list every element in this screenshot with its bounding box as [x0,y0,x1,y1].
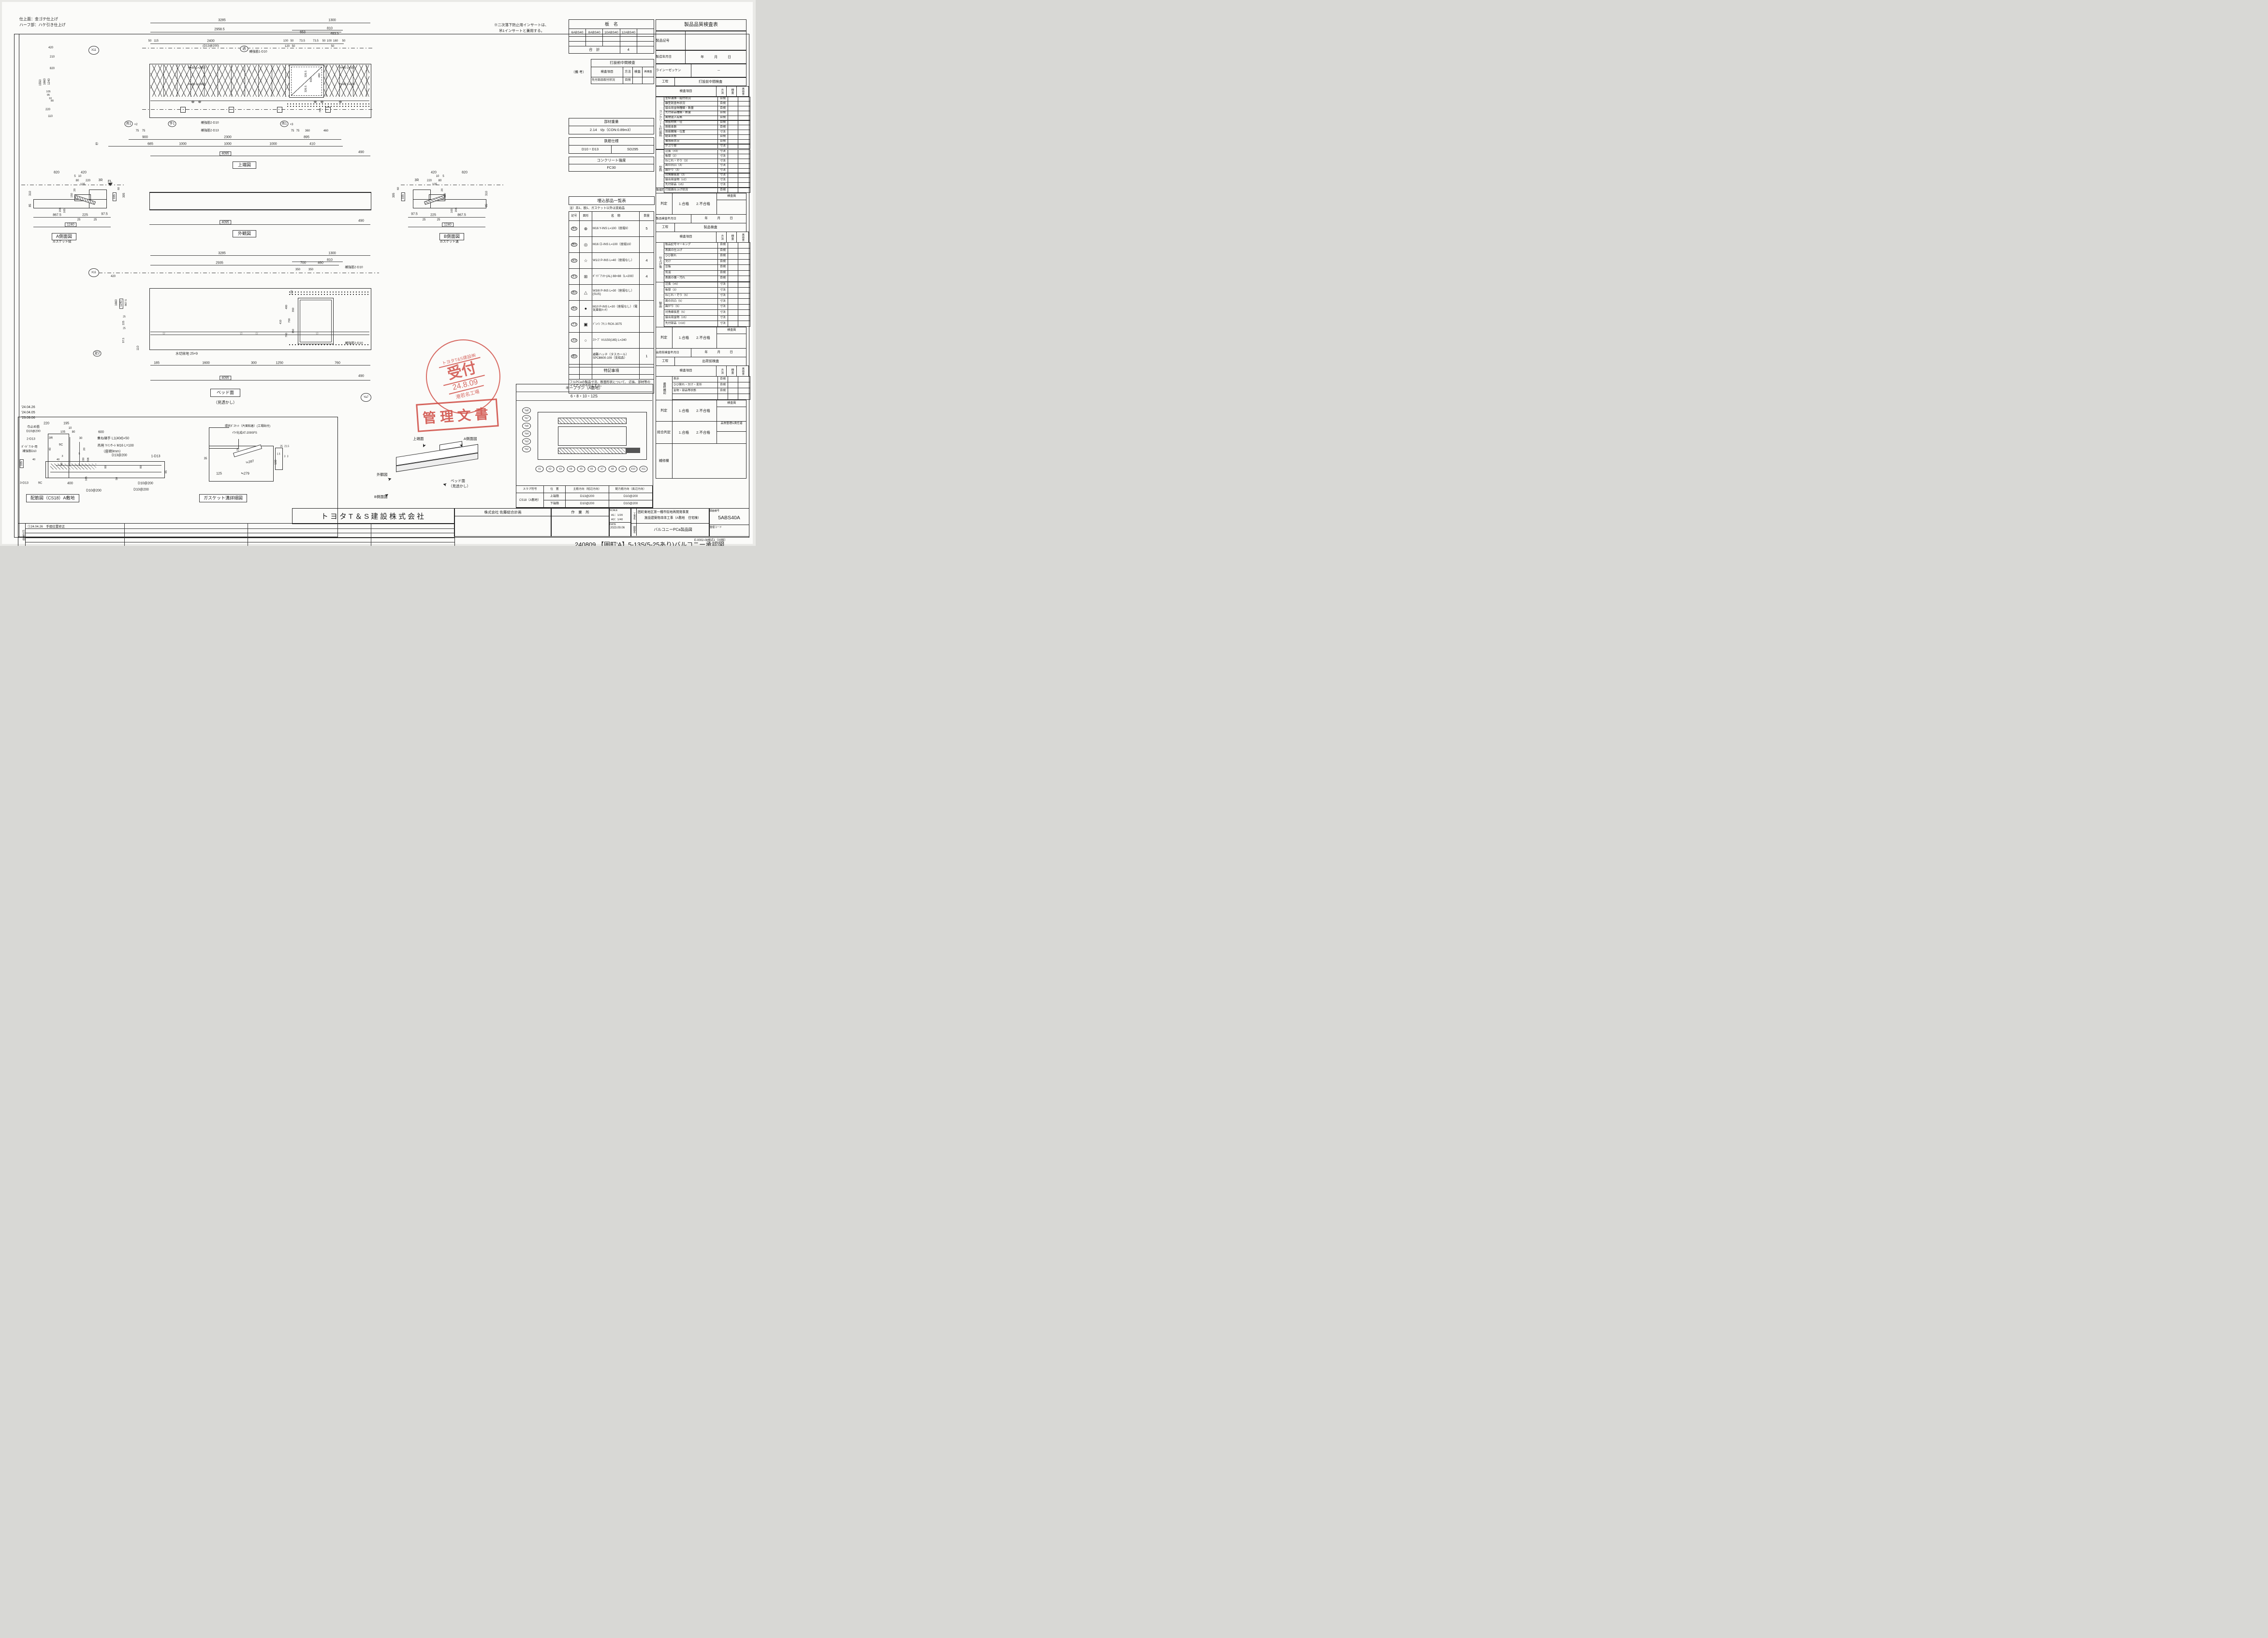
q-cell: 打設面仕上げ状況 [664,188,718,193]
quality-table: 製品品質検査表製品記号製造年月日年 月 日ラインーゼッケン－工程打設前中間検査検… [656,19,746,479]
tb-project: 工事名囲町東地区第一種市街地再開発事業施設建築物本体工事（A敷地 住宅棟）図面名… [630,508,710,537]
dim-50: 50 [291,40,294,43]
dim-40: 40 [32,459,35,462]
dim-×2: ×2 [134,123,138,126]
keyplan-x-X1: X1 [536,466,544,472]
weight-table-cell: 2.14 t/p（CON:0.89m3） [569,126,654,134]
dim-350: 350 [293,329,295,333]
q-cell: 寸法 [717,144,728,149]
rebar-spec-table-cell: 鉄筋仕様 [569,138,654,146]
q-row: 接合用金物（±5）寸法 [664,315,750,321]
q-row: 板厚（3）寸法 [664,288,750,293]
dim-60: 60 [118,187,121,190]
concrete-table: コンクリート強度FC30 [569,157,654,172]
plan-hatch [150,65,369,97]
slab-rebar-table-cell: 上端筋 [544,493,566,500]
q-cell: 製造年月日 [656,50,686,64]
q-row: 検査項目方法検査再検査 [656,86,746,97]
embedded-parts-table-cell: 数量 [640,212,654,221]
q-cell: 判定 [656,400,673,422]
q-cell [728,394,738,400]
dim-150: 150 [71,193,74,197]
dim-2400: 2400 [207,39,215,43]
embedded-parts-table-cell: 足2 [569,253,580,269]
dim-400: 400 [67,482,73,485]
q-cell [728,315,738,321]
q-cell [738,315,750,321]
q-cell: ねじれ・そり（5） [664,293,718,299]
dim-310: 310 [29,191,32,196]
dim-10: 10 [436,175,439,178]
dim-60: 60 [397,187,400,190]
rebar-spec-table-cell: D10・D13 [569,146,612,154]
q-cell: 製品記号 [656,31,686,51]
q-cell [738,293,750,299]
dim-100: 100 [327,40,332,43]
q-cell: 曲がり（5） [664,304,718,310]
slab-rebar-table-cell: 配力筋方向（長辺方向） [609,486,653,493]
keyplan-x-X7: X7 [598,466,606,472]
rebar-title: 配筋図（CS18）A敷地 [26,494,79,502]
dim-395: 395 [393,193,395,198]
dim-220: 220 [44,422,49,425]
biko-table-cell: 再検査 [643,67,654,77]
dim-50: 50 [342,40,346,43]
dim-3: 3 [61,455,63,458]
dim-30: 30 [79,437,83,440]
biko-table-cell: 検査 [633,67,643,77]
q-row: ねじれ・そり（5）寸法 [664,293,750,299]
q-cell: 判定 [656,193,673,215]
q-cell: 型枠 [656,149,664,188]
q-cell: 再検査 [736,366,749,377]
grid-bubble-x11-bed: X11 [88,268,99,277]
q-cell [728,376,738,382]
dim-80: 80 [140,466,143,468]
insert-note-1: ※二次落下防止用インサートは、 [494,22,549,28]
q-cell [738,270,750,276]
q-row: 面の凹凸（3）寸法 [664,163,750,168]
dim-D10@200: D10@200 [26,430,40,434]
slab-rebar-table-cell: CS18（A敷地） [516,493,544,508]
dim-補強筋1-D10: 補強筋1-D10 [249,51,267,54]
q-cell: 目視 [717,376,728,382]
elevA-sub: ガスケット貼 [53,241,72,244]
q-cell: 辺長（±5） [664,282,718,288]
q-cell: 目視 [717,276,728,281]
dim-21.5: 21.5 [284,445,289,448]
dim-335: 335 [113,192,117,201]
q-section: 打設後打設面仕上げ状況目視 [656,188,746,193]
bed-title: ベッド面 [210,389,240,397]
q-cell [738,253,750,259]
q-cell: 目視 [717,188,728,193]
dim-225: 225 [123,321,126,325]
dim-1250: 1250 [276,361,283,365]
drawing-sheet: 仕上面：金ゴテ仕上げ ハーフ部：ハケ引き仕上げ ※二次落下防止用インサートは、 … [0,0,756,546]
keyplan-ya-Ya6: Ya6 [522,423,531,429]
q-cell [738,287,750,293]
dim-300: 300 [251,361,257,365]
embedded-parts-table-cell: 脱1 [569,237,580,253]
q-row: 判定1.合格 2.不合格検査員 [656,193,746,215]
q-cell: 目視 [717,270,728,276]
dim-100: 100 [275,460,278,465]
dim-25: 25 [280,445,283,448]
dim-50: 50 [148,40,152,43]
embedded-parts-table-cell: 5 [640,221,654,237]
dim-逃: 逃 [240,46,249,52]
slab-rebar-table-cell: D10@200 [609,500,653,508]
embedded-parts-table-cell: 避難ハッチ（タスカール） SPCⅢ600-109（支給品） [592,349,640,365]
dim-185: 185 [154,361,160,365]
dim-H=80 L=2800: H=80 L=2800 [188,83,205,86]
revision-row: ①24.04.26 手摺位置修正 [26,524,454,529]
dim-105: 105 [80,183,85,186]
embedded-parts-table-cell [640,333,654,349]
q-row: ひび割れ目視 [664,254,750,260]
plan-opening [289,65,324,98]
q-cell [738,264,750,270]
dim-350: 350 [293,307,295,312]
revision-divider [248,523,248,546]
biko-table-cell: 検査項目 [591,67,623,77]
dim-460: 460 [323,130,328,132]
q-cell: 豆板 [664,264,718,270]
q-cell [738,298,750,304]
elevB-sub: ガスケット溝 [440,241,459,244]
embedded-parts-table-cell: 水2 [569,301,580,317]
panel-name-table-cell [637,46,654,54]
q-section-rows: 辺長（±5）寸法板厚（3）寸法ねじれ・そり（5）寸法面の凹凸（5）寸法曲がり（5… [664,282,750,327]
dim-☆: ☆ [315,332,319,336]
q-inspector: 検査員 [717,193,746,215]
dim-H=80 L=300: H=80 L=300 [339,67,355,70]
dim-40: 40 [57,459,59,462]
q-cell [728,270,738,276]
dim-653: 653 [300,30,306,34]
panel-name-table-cell: 10ABS40 [603,29,620,37]
dim-20: 20 [74,189,77,191]
q-cell [728,298,738,304]
q-cell: 製品検査年月日 [656,214,691,223]
revision-row [26,529,454,533]
dim-H=80 L=2800: H=80 L=2800 [188,67,205,70]
q-cell [728,264,738,270]
revision-label: 訂正事項 [18,524,26,546]
embedded-parts-table-cell: ▣ [580,317,592,333]
dim-310: 310 [485,191,488,196]
dim-80: 80 [105,466,108,468]
q-row: ラインーゼッケン－ [656,64,746,77]
dim-1660: 1660 [44,78,46,85]
dim-220: 220 [45,108,50,111]
q-inspector-blank [717,334,746,348]
dim-208: 208 [455,207,458,212]
q-cell [738,144,750,149]
panel-name-table-cell [620,42,637,46]
elevA-title: A側面図 [52,233,76,240]
q-cell: 1.合格 2.不合格 [672,193,717,215]
dim-巾止め筋: 巾止め筋 [27,426,40,429]
dim-820: 820 [54,171,59,174]
dim-95: 95 [47,94,50,97]
dim-25: 25 [423,219,426,221]
q-row: ねじれ・そり（3）寸法 [664,159,750,164]
iso-label-top: 上端面 [413,436,424,441]
embedded-parts-table-cell: M16 ロ-INS L=100（座堀19） [592,237,640,253]
dim-395: 395 [123,193,126,198]
dim-165: 165 [86,476,88,481]
grid-bubble-x11-plan: X11 [88,46,99,55]
tb-scale-date: SCALEA1：1/20A3：1/40DATE2023.09.06 [609,508,631,537]
q-row: 製造年月日年 月 日 [656,50,746,64]
q-cell [717,394,728,400]
dim-吊1: 吊1 [125,121,133,127]
rebar-spec-table-cell: SD295 [612,146,654,154]
q-cell: 寸法 [717,293,728,299]
q-inspector-blank [717,200,746,214]
dim-40: 40 [61,463,64,466]
q-cell [738,276,750,281]
dim-150: 150 [83,457,86,462]
q-cell: 工程 [656,357,675,366]
q-cell: 製品 [656,282,664,327]
dim-73.5: 73.5 [313,40,319,43]
panel-name-table-cell [603,42,620,46]
embedded-parts-table-cell: ﾎﾞｲﾄﾞｱﾝｶｰ(AL) 88×88（L=200） [592,269,640,285]
panel-name-table-cell [603,37,620,42]
q-cell [728,293,738,299]
q-cell: 目視 [717,264,728,270]
dim-25: 25 [94,219,97,221]
dim-3R: 3R [99,178,103,182]
dim-1240: 1240 [119,298,123,308]
keyplan-x-X4: X4 [567,466,575,472]
dim-5: 5 [74,175,75,178]
q-cell: 接合用金物（±5） [664,315,718,321]
embedded-parts-table-cell [640,237,654,253]
q-cell: 寸法 [717,309,728,315]
dim-220: 220 [86,179,90,182]
embedded-parts-table-cell: 4 [640,269,654,285]
dim-80: 80 [72,431,75,434]
embedded-parts-table-cell: M16 Y-INS L=100（座堀9） [592,221,640,237]
dim-97.5: 97.5 [123,338,126,343]
q-cell: 打設後 [656,188,664,193]
biko-table: 打設前中間検査検査項目方法検査再検査先付部品取付状況目視 [591,59,654,84]
q-row: 総合判定1.合格 2.不合格品質管理G責任者 [656,422,746,444]
q-cell: 目視 [717,248,728,254]
q-section: 最終確認表示目視ひび割れ・欠け・変形目視金物・部品等状態目視 [656,377,746,400]
dim-867.5: 867.5 [125,299,128,306]
dim-208: 208 [88,457,90,462]
q-inspector-label: 検査員 [717,327,746,334]
keyplan-ya-Ya4: Ya4 [522,431,531,437]
q-cell [728,304,738,310]
dim-480: 480 [319,73,322,77]
q-cell: 目視 [717,388,728,394]
panel-name-table-cell [569,37,586,42]
dim-10: 10 [69,427,72,430]
q-cell: 補修欄 [656,443,673,479]
tb-dwg-number: 図面番号5ABS40A整理コード [709,508,749,537]
dim-⊕: ⊕ [191,100,195,104]
q-cell: － [691,64,747,78]
embedded-parts-table-cell [640,301,654,317]
dim-10: 10 [78,175,82,178]
keyplan-x-X9: X9 [619,466,627,472]
dim-110: 110 [48,115,53,118]
dim-420: 420 [111,275,116,278]
keyplan-highlight [626,448,640,453]
dim-⊕: ⊕ [321,100,324,104]
dim-20: 20 [84,448,87,451]
keyplan-subtitle: 6・8・10・12S [516,394,652,399]
bed-opening [298,298,334,344]
q-cell [738,259,750,265]
embedded-parts-table-cell: W3/8 P-INS L=30（座堀なし）(SUS) [592,285,640,301]
dim-653: 653 [310,77,313,82]
elevB-parapet [413,190,431,208]
dim-350: 350 [308,268,313,271]
q-row: 補強筋状況目視 [664,139,750,144]
dim-50: 50 [322,40,326,43]
dim-25: 25 [123,327,126,330]
tb-architect: 株式会社 佐藤総合計画 [454,508,552,537]
q-cell: 年 月 日 [691,214,747,223]
dim-①: ① [95,142,98,146]
q-cell [738,382,750,388]
keyplan-ya-Ya7: Ya7 [522,415,531,422]
biko-table-cell: 先付部品取付状況 [591,77,623,84]
q-inspector-label: 検査員 [717,193,746,200]
dim-335: 335 [20,459,24,468]
dim-335: 335 [401,192,405,201]
dim-D10@200: D10@200 [86,489,102,492]
panel-name-table-cell [637,37,654,42]
dim-490: 490 [358,150,364,154]
embedded-parts-table-cell: ○ [580,333,592,349]
front-outline [149,192,371,210]
dim-685: 685 [147,142,153,146]
q-cell: 表面の仕上げ [664,248,718,254]
revision-row [26,542,454,546]
dim-490: 490 [358,219,364,222]
dim-165: 165 [64,208,67,213]
embedded-parts-table-cell: ｽﾘｰﾌﾞ VU150(165) L=240 [592,333,640,349]
q-cell [738,304,750,310]
q-cell [728,287,738,293]
dim-25: 25 [123,316,126,318]
dim-160: 160 [333,40,338,43]
q-cell [728,182,738,188]
q-row: 先付部品（±5）寸法 [664,183,750,188]
dim-50: 50 [292,45,295,48]
embedded-parts-table-cell: 名 称 [592,212,640,221]
dim-1240: 1240 [65,222,76,227]
dim-(D13@200): (D13@200) [203,45,219,48]
weight-table-cell: 部材重量 [569,118,654,126]
q-row: 工程出荷前検査 [656,357,746,366]
q-cell [738,388,750,394]
q-row: ひび割れ・欠け・変形目視 [672,382,750,388]
dim-420: 420 [81,171,87,174]
revision-rows: ①24.04.26 手摺位置修正 [26,524,454,546]
dim-2958.5: 2958.5 [214,28,224,31]
dim-225: 225 [430,213,436,217]
q-cell: 検査項目 [656,86,717,97]
dim-D13@200: D13@200 [112,453,127,457]
panel-name-table-cell [637,29,654,37]
q-cell: 1.合格 2.不合格 [672,400,717,422]
q-section-rows: 表示目視ひび割れ・欠け・変形目視金物・部品等状態目視 [672,377,750,400]
dim-210: 210 [50,56,55,58]
q-row: 鉄筋材質・径目視 [664,120,750,125]
q-cell: 表示 [672,376,718,382]
q-row: 先付部品種類・数量目視 [664,111,750,116]
q-cell [738,282,750,288]
dim-ﾎﾞｲﾄﾞｱﾝｶｰ用: ﾎﾞｲﾄﾞｱﾝｶｰ用 [21,446,37,449]
dim-25: 25 [437,219,440,221]
dim-220: 220 [427,179,432,182]
q-cell [685,31,747,51]
dim-ｲﾜｲ化成AT-209SFS: ｲﾜｲ化成AT-209SFS [232,432,257,435]
dim-1.5: 1.5 [277,453,280,455]
dim-1-D13: 1-D13 [151,454,160,458]
elevA-parapet [89,190,107,208]
embedded-parts-table-cell: ◎ [580,237,592,253]
q-cell: 寸法 [717,182,728,188]
keyplan-x-X3: X3 [556,466,565,472]
q-cell: 方法 [716,232,727,243]
embedded-parts-table-cell: M10 P-INS L=30（座堀なし）（電気亜鉛ﾒｯｷ） [592,301,640,317]
dim-867.5: 867.5 [457,213,466,217]
dim-4095: 4095 [219,376,231,380]
rebar-spec-table: 鉄筋仕様D10・D13SD295 [569,137,654,154]
keyplan-ya-Ya3: Ya3 [522,439,531,445]
q-row: 離型剤塗布状況目視 [664,102,750,106]
tb-site: 作 業 所 [551,508,610,537]
dim-105: 105 [60,431,65,434]
dim-410: 410 [309,142,315,146]
q-row: 工程製品検査 [656,223,746,232]
dim-補強筋D10: 補強筋D10 [22,450,36,453]
q-row: 型枠清掃・組付状況目視 [664,97,750,102]
embedded-parts-table-cell [580,349,592,365]
dim-1000: 1000 [179,142,187,146]
dim-85: 85 [165,470,168,473]
q-cell: 出荷前検査年月日 [656,348,691,357]
dim-208: 208 [59,207,62,212]
q-cell: 最終確認 [656,376,673,400]
q-cell [672,394,718,400]
dim-☆: ☆ [239,332,243,336]
embedded-parts-table-cell: 避1 [569,349,580,365]
q-cell: 寸法 [717,304,728,310]
company-name: トヨタT＆S建設株式会社 [292,508,455,524]
dim-326.5: 326.5 [305,71,308,77]
dim-225: 225 [82,213,88,217]
dim-1660: 1660 [115,299,118,306]
q-cell: 製品検査 [674,223,747,232]
embedded-parts-table-cell: 記号 [569,212,580,221]
keyplan-x-X6: X6 [587,466,596,472]
keyplan-x-X8: X8 [608,466,616,472]
dim-483.5: 483.5 [330,32,339,35]
q-cell [738,182,750,188]
keyplan-ya-Ya2: Ya2 [522,446,531,453]
